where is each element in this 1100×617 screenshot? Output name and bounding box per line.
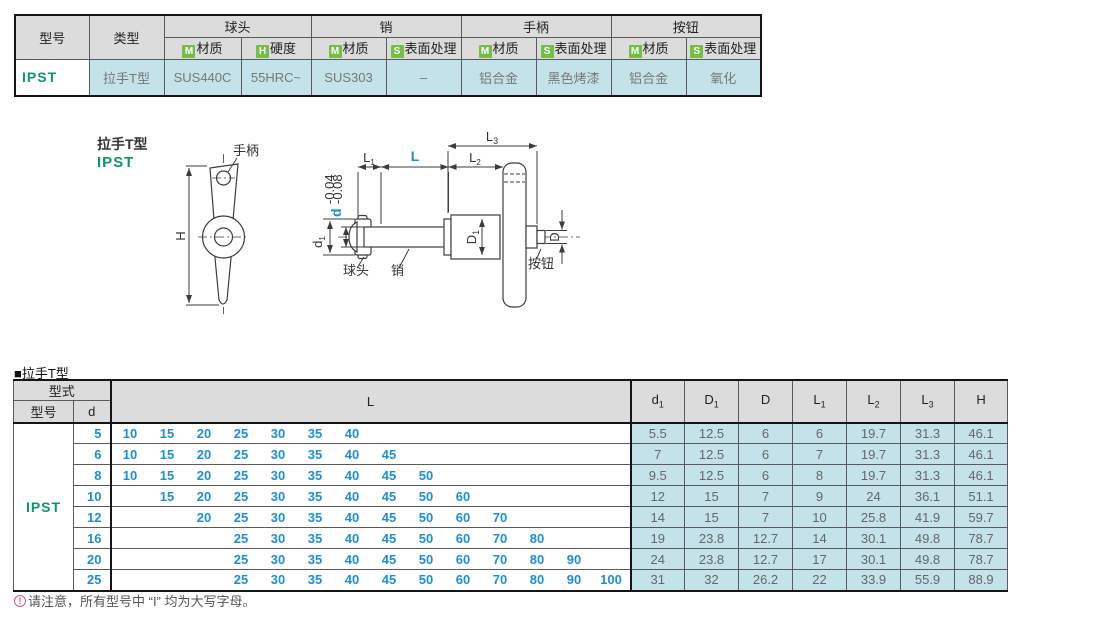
dim-col-D1: D1: [685, 380, 739, 423]
l-value: 45: [371, 468, 408, 483]
h-dim-label: H: [173, 231, 188, 240]
dim-value-cell: 14: [793, 528, 847, 549]
dim-value-cell: 12.5: [685, 465, 739, 486]
spec-group-handle: 手柄: [461, 15, 611, 37]
l-value: 40: [334, 572, 371, 587]
l-value: 90: [556, 552, 593, 567]
dim-value-cell: 30.1: [847, 528, 901, 549]
l-value: 25: [223, 426, 260, 441]
dim-col-L1: L1: [793, 380, 847, 423]
dim-value-cell: 9: [793, 486, 847, 507]
spec-value: –: [386, 59, 461, 96]
dim-value-cell: 6: [739, 423, 793, 444]
spec-sub-label: 表面处理: [704, 41, 756, 56]
dim-value-cell: 9.5: [631, 465, 685, 486]
l-value: 50: [408, 572, 445, 587]
dim-value-cell: 32: [685, 570, 739, 591]
d-value-cell: 10: [74, 486, 111, 507]
material-badge-icon: M: [182, 45, 195, 58]
l-value: 70: [482, 510, 519, 525]
spec-sub-label: 表面处理: [405, 41, 457, 56]
l-value: 40: [334, 426, 371, 441]
dim-value-cell: 24: [847, 486, 901, 507]
l-values-cell: 25303540455060708090100: [111, 570, 631, 591]
l-value: 80: [519, 531, 556, 546]
d-dim-label: d -0.04 -0.08: [322, 174, 345, 217]
l-value: 30: [260, 510, 297, 525]
l-value: 20: [186, 468, 223, 483]
l-value: 35: [297, 468, 334, 483]
l-value: 35: [297, 447, 334, 462]
dim-value-cell: 23.8: [685, 528, 739, 549]
l-value: 30: [260, 468, 297, 483]
d-value-cell: 6: [74, 444, 111, 465]
l-value: 35: [297, 552, 334, 567]
l-value: 35: [297, 426, 334, 441]
l-value: 15: [149, 426, 186, 441]
dim-value-cell: 14: [631, 507, 685, 528]
l-value: 20: [186, 447, 223, 462]
l-value: 45: [371, 510, 408, 525]
dim-col-d: d: [74, 401, 111, 423]
l-value: 25: [223, 468, 260, 483]
spec-value: 铝合金: [461, 59, 536, 96]
l-value: 30: [260, 489, 297, 504]
l-value: 10: [112, 468, 149, 483]
dim-value-cell: 6: [739, 444, 793, 465]
dim-value-cell: 31: [631, 570, 685, 591]
dim-value-cell: 6: [739, 465, 793, 486]
d-value-cell: 20: [74, 549, 111, 570]
dim-col-d1: d1: [631, 380, 685, 423]
dim-value-cell: 15: [685, 507, 739, 528]
dim-row: 101520253035404550601215792436.151.1: [14, 486, 1008, 507]
dim-value-cell: 49.8: [901, 528, 955, 549]
material-badge-icon: M: [479, 45, 492, 58]
d-value-cell: 5: [74, 423, 111, 444]
l-dim-label: L: [411, 148, 420, 164]
dim-value-cell: 33.9: [847, 570, 901, 591]
spec-value: 氧化: [686, 59, 761, 96]
l-value: 15: [149, 468, 186, 483]
dim-value-cell: 49.8: [901, 549, 955, 570]
l-value: 50: [408, 489, 445, 504]
dim-table-body: IPST5101520253035405.512.56619.731.346.1…: [14, 423, 1008, 591]
spec-col-type: 类型: [89, 15, 164, 59]
l-value: 30: [260, 552, 297, 567]
d-value-cell: 16: [74, 528, 111, 549]
l-value: 40: [334, 447, 371, 462]
technical-drawing: 拉手T型 IPST H 手柄: [75, 122, 645, 327]
dim-value-cell: 88.9: [955, 570, 1008, 591]
side-view: D1 D L3 L1 L L2 d -0.04 -0.08: [310, 129, 580, 307]
l-value: 10: [112, 426, 149, 441]
l-value: 25: [223, 572, 260, 587]
spec-value: 铝合金: [611, 59, 686, 96]
l-value: 80: [519, 572, 556, 587]
dim-value-cell: 15: [685, 486, 739, 507]
dim-value-cell: 23.8: [685, 549, 739, 570]
dim-row: 12202530354045506070141571025.841.959.7: [14, 507, 1008, 528]
material-badge-icon: M: [329, 45, 342, 58]
dim-value-cell: 31.3: [901, 465, 955, 486]
dimension-table: 型式 L d1 D1 D L1 L2 L3 H 型号 d IPST5101520…: [13, 379, 1008, 592]
l3-dim-label: L3: [486, 129, 498, 146]
l-value: 25: [223, 531, 260, 546]
dim-value-cell: 19.7: [847, 423, 901, 444]
l-value: 20: [186, 426, 223, 441]
dim-value-cell: 46.1: [955, 444, 1008, 465]
dim-row: 162530354045506070801923.812.71430.149.8…: [14, 528, 1008, 549]
dim-value-cell: 22: [793, 570, 847, 591]
l-value: 45: [371, 447, 408, 462]
dim-value-cell: 31.3: [901, 444, 955, 465]
dim-value-cell: 6: [793, 423, 847, 444]
l-values-cell: 1015202530354045: [111, 444, 631, 465]
material-badge-icon: M: [629, 45, 642, 58]
l-value: 70: [482, 531, 519, 546]
diagram-title: 拉手T型: [97, 136, 148, 152]
t-handle-front-view: H 手柄: [173, 143, 259, 314]
svg-text:d: d: [328, 208, 344, 217]
l-value: 25: [223, 552, 260, 567]
dim-col-L2: L2: [847, 380, 901, 423]
spec-sub-handle-surface: S表面处理: [536, 37, 611, 59]
surface-badge-icon: S: [541, 45, 554, 58]
l-value: 25: [223, 510, 260, 525]
l-value: 80: [519, 552, 556, 567]
l-value: 45: [371, 572, 408, 587]
dim-value-cell: 12.7: [739, 528, 793, 549]
spec-sub-button-surface: S表面处理: [686, 37, 761, 59]
l-value: 60: [445, 531, 482, 546]
spec-sub-button-material: M材质: [611, 37, 686, 59]
l-value: 10: [112, 447, 149, 462]
l-value: 50: [408, 468, 445, 483]
footnote-text: 请注意，所有型号中 “I” 均为大写字母。: [28, 591, 256, 610]
l-value: 60: [445, 572, 482, 587]
l-value: 40: [334, 468, 371, 483]
dim-value-cell: 8: [793, 465, 847, 486]
l-value: 50: [408, 510, 445, 525]
dim-col-L: L: [111, 380, 631, 423]
spec-value: 黑色烤漆: [536, 59, 611, 96]
dim-col-H: H: [955, 380, 1008, 423]
l-value: 70: [482, 552, 519, 567]
warning-circle-icon: !: [14, 595, 26, 607]
dim-value-cell: 17: [793, 549, 847, 570]
dim-value-cell: 19.7: [847, 444, 901, 465]
dim-col-L3: L3: [901, 380, 955, 423]
button-label: 按钮: [528, 256, 554, 271]
l-value: 45: [371, 552, 408, 567]
spec-sub-ball-material: M材质: [164, 37, 241, 59]
l-values-cell: 152025303540455060: [111, 486, 631, 507]
dim-value-cell: 31.3: [901, 423, 955, 444]
dim-value-cell: 7: [793, 444, 847, 465]
spec-model-value: IPST: [15, 59, 89, 96]
svg-text:-0.08: -0.08: [330, 174, 345, 204]
dim-value-cell: 46.1: [955, 465, 1008, 486]
hardness-badge-icon: H: [256, 45, 269, 58]
l-value: 50: [408, 531, 445, 546]
spec-value: SUS303: [311, 59, 386, 96]
dim-row: 81015202530354045509.512.56819.731.346.1: [14, 465, 1008, 486]
surface-badge-icon: S: [391, 45, 404, 58]
dim-col-D: D: [739, 380, 793, 423]
spec-sub-label: 材质: [493, 41, 519, 56]
spec-row: IPST 拉手T型 SUS440C 55HRC~ SUS303 – 铝合金 黑色…: [15, 59, 761, 96]
spec-sub-label: 硬度: [270, 41, 296, 56]
l-value: 45: [371, 489, 408, 504]
dim-value-cell: 78.7: [955, 528, 1008, 549]
spec-sub-handle-material: M材质: [461, 37, 536, 59]
l-value: 90: [556, 572, 593, 587]
l-values-cell: 10152025303540: [111, 423, 631, 444]
dim-value-cell: 46.1: [955, 423, 1008, 444]
l-value: 60: [445, 552, 482, 567]
dim-value-cell: 36.1: [901, 486, 955, 507]
dim-row: 20253035404550607080902423.812.71730.149…: [14, 549, 1008, 570]
l2-dim-label: L2: [469, 150, 481, 167]
dim-col-type-group: 型式: [14, 380, 111, 401]
l-value: 35: [297, 489, 334, 504]
l-values-cell: 253035404550607080: [111, 528, 631, 549]
dim-value-cell: 7: [631, 444, 685, 465]
l-value: 40: [334, 531, 371, 546]
l-value: 60: [445, 510, 482, 525]
dim-value-cell: 25.8: [847, 507, 901, 528]
dim-value-cell: 7: [739, 507, 793, 528]
l-values-cell: 25303540455060708090: [111, 549, 631, 570]
l-value: 15: [149, 447, 186, 462]
spec-value: 55HRC~: [241, 59, 311, 96]
d-value-cell: 12: [74, 507, 111, 528]
spec-sub-label: 材质: [643, 41, 669, 56]
spec-group-button: 按钮: [611, 15, 761, 37]
l-value: 30: [260, 572, 297, 587]
spec-col-model: 型号: [15, 15, 89, 59]
handle-label: 手柄: [233, 143, 259, 158]
dim-row: IPST5101520253035405.512.56619.731.346.1: [14, 423, 1008, 444]
dim-value-cell: 30.1: [847, 549, 901, 570]
dim-value-cell: 12: [631, 486, 685, 507]
dim-value-cell: 41.9: [901, 507, 955, 528]
spec-sub-ball-hardness: H硬度: [241, 37, 311, 59]
l-value: 35: [297, 572, 334, 587]
l-value: 30: [260, 531, 297, 546]
l-value: 40: [334, 510, 371, 525]
spec-sub-pin-surface: S表面处理: [386, 37, 461, 59]
dim-value-cell: 59.7: [955, 507, 1008, 528]
spec-group-ball: 球头: [164, 15, 311, 37]
l-value: 25: [223, 447, 260, 462]
l-value: 20: [186, 489, 223, 504]
pin-label: 销: [391, 263, 404, 278]
spec-sub-label: 表面处理: [555, 41, 607, 56]
dim-row: 2525303540455060708090100313226.22233.95…: [14, 570, 1008, 591]
dim-value-cell: 24: [631, 549, 685, 570]
l1-dim-label: L1: [363, 150, 375, 167]
l-values-cell: 202530354045506070: [111, 507, 631, 528]
diagram-model: IPST: [97, 154, 134, 171]
l-value: 35: [297, 510, 334, 525]
dim-value-cell: 12.5: [685, 444, 739, 465]
l-value: 25: [223, 489, 260, 504]
dim-value-cell: 26.2: [739, 570, 793, 591]
dim-col-model: 型号: [14, 401, 74, 423]
dim-value-cell: 5.5: [631, 423, 685, 444]
spec-sub-label: 材质: [196, 41, 222, 56]
dim-value-cell: 19: [631, 528, 685, 549]
l-value: 60: [445, 489, 482, 504]
dim-row: 61015202530354045712.56719.731.346.1: [14, 444, 1008, 465]
l-value: 15: [149, 489, 186, 504]
dim-value-cell: 78.7: [955, 549, 1008, 570]
l-values-cell: 101520253035404550: [111, 465, 631, 486]
d-value-cell: 25: [74, 570, 111, 591]
l-value: 100: [593, 572, 630, 587]
dim-value-cell: 7: [739, 486, 793, 507]
spec-type-value: 拉手T型: [89, 59, 164, 96]
l-value: 50: [408, 552, 445, 567]
dim-value-cell: 12.5: [685, 423, 739, 444]
l-value: 35: [297, 531, 334, 546]
l-value: 40: [334, 489, 371, 504]
D-dim-label: D: [547, 232, 562, 241]
spec-value: SUS440C: [164, 59, 241, 96]
spec-group-pin: 销: [311, 15, 461, 37]
footnote: ! 请注意，所有型号中 “I” 均为大写字母。: [14, 591, 256, 610]
dim-model-value: IPST: [14, 423, 74, 591]
l-value: 40: [334, 552, 371, 567]
spec-sub-label: 材质: [343, 41, 369, 56]
l-value: 20: [186, 510, 223, 525]
l-value: 30: [260, 426, 297, 441]
d-value-cell: 8: [74, 465, 111, 486]
d1-dim-label: d1: [310, 236, 327, 248]
dim-value-cell: 55.9: [901, 570, 955, 591]
spec-sub-pin-material: M材质: [311, 37, 386, 59]
l-value: 45: [371, 531, 408, 546]
dim-value-cell: 12.7: [739, 549, 793, 570]
dim-value-cell: 19.7: [847, 465, 901, 486]
dim-value-cell: 51.1: [955, 486, 1008, 507]
l-value: 30: [260, 447, 297, 462]
spec-table: 型号 类型 球头 销 手柄 按钮 M材质 H硬度 M材质 S表面处理 M材质 S…: [14, 14, 762, 97]
dim-value-cell: 10: [793, 507, 847, 528]
ball-label: 球头: [343, 263, 369, 278]
surface-badge-icon: S: [690, 45, 703, 58]
l-value: 70: [482, 572, 519, 587]
